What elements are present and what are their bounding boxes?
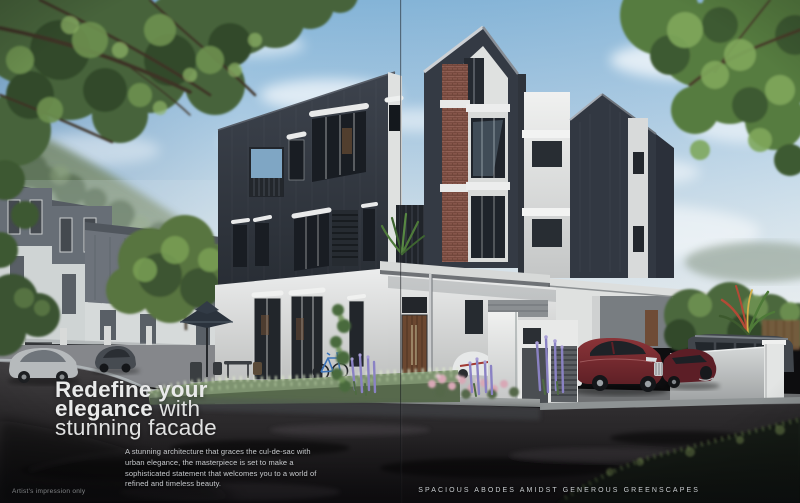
brochure-spread: Redefine your elegance with stunning fac… <box>0 0 800 503</box>
architectural-render <box>0 0 800 503</box>
vignette <box>0 0 800 503</box>
